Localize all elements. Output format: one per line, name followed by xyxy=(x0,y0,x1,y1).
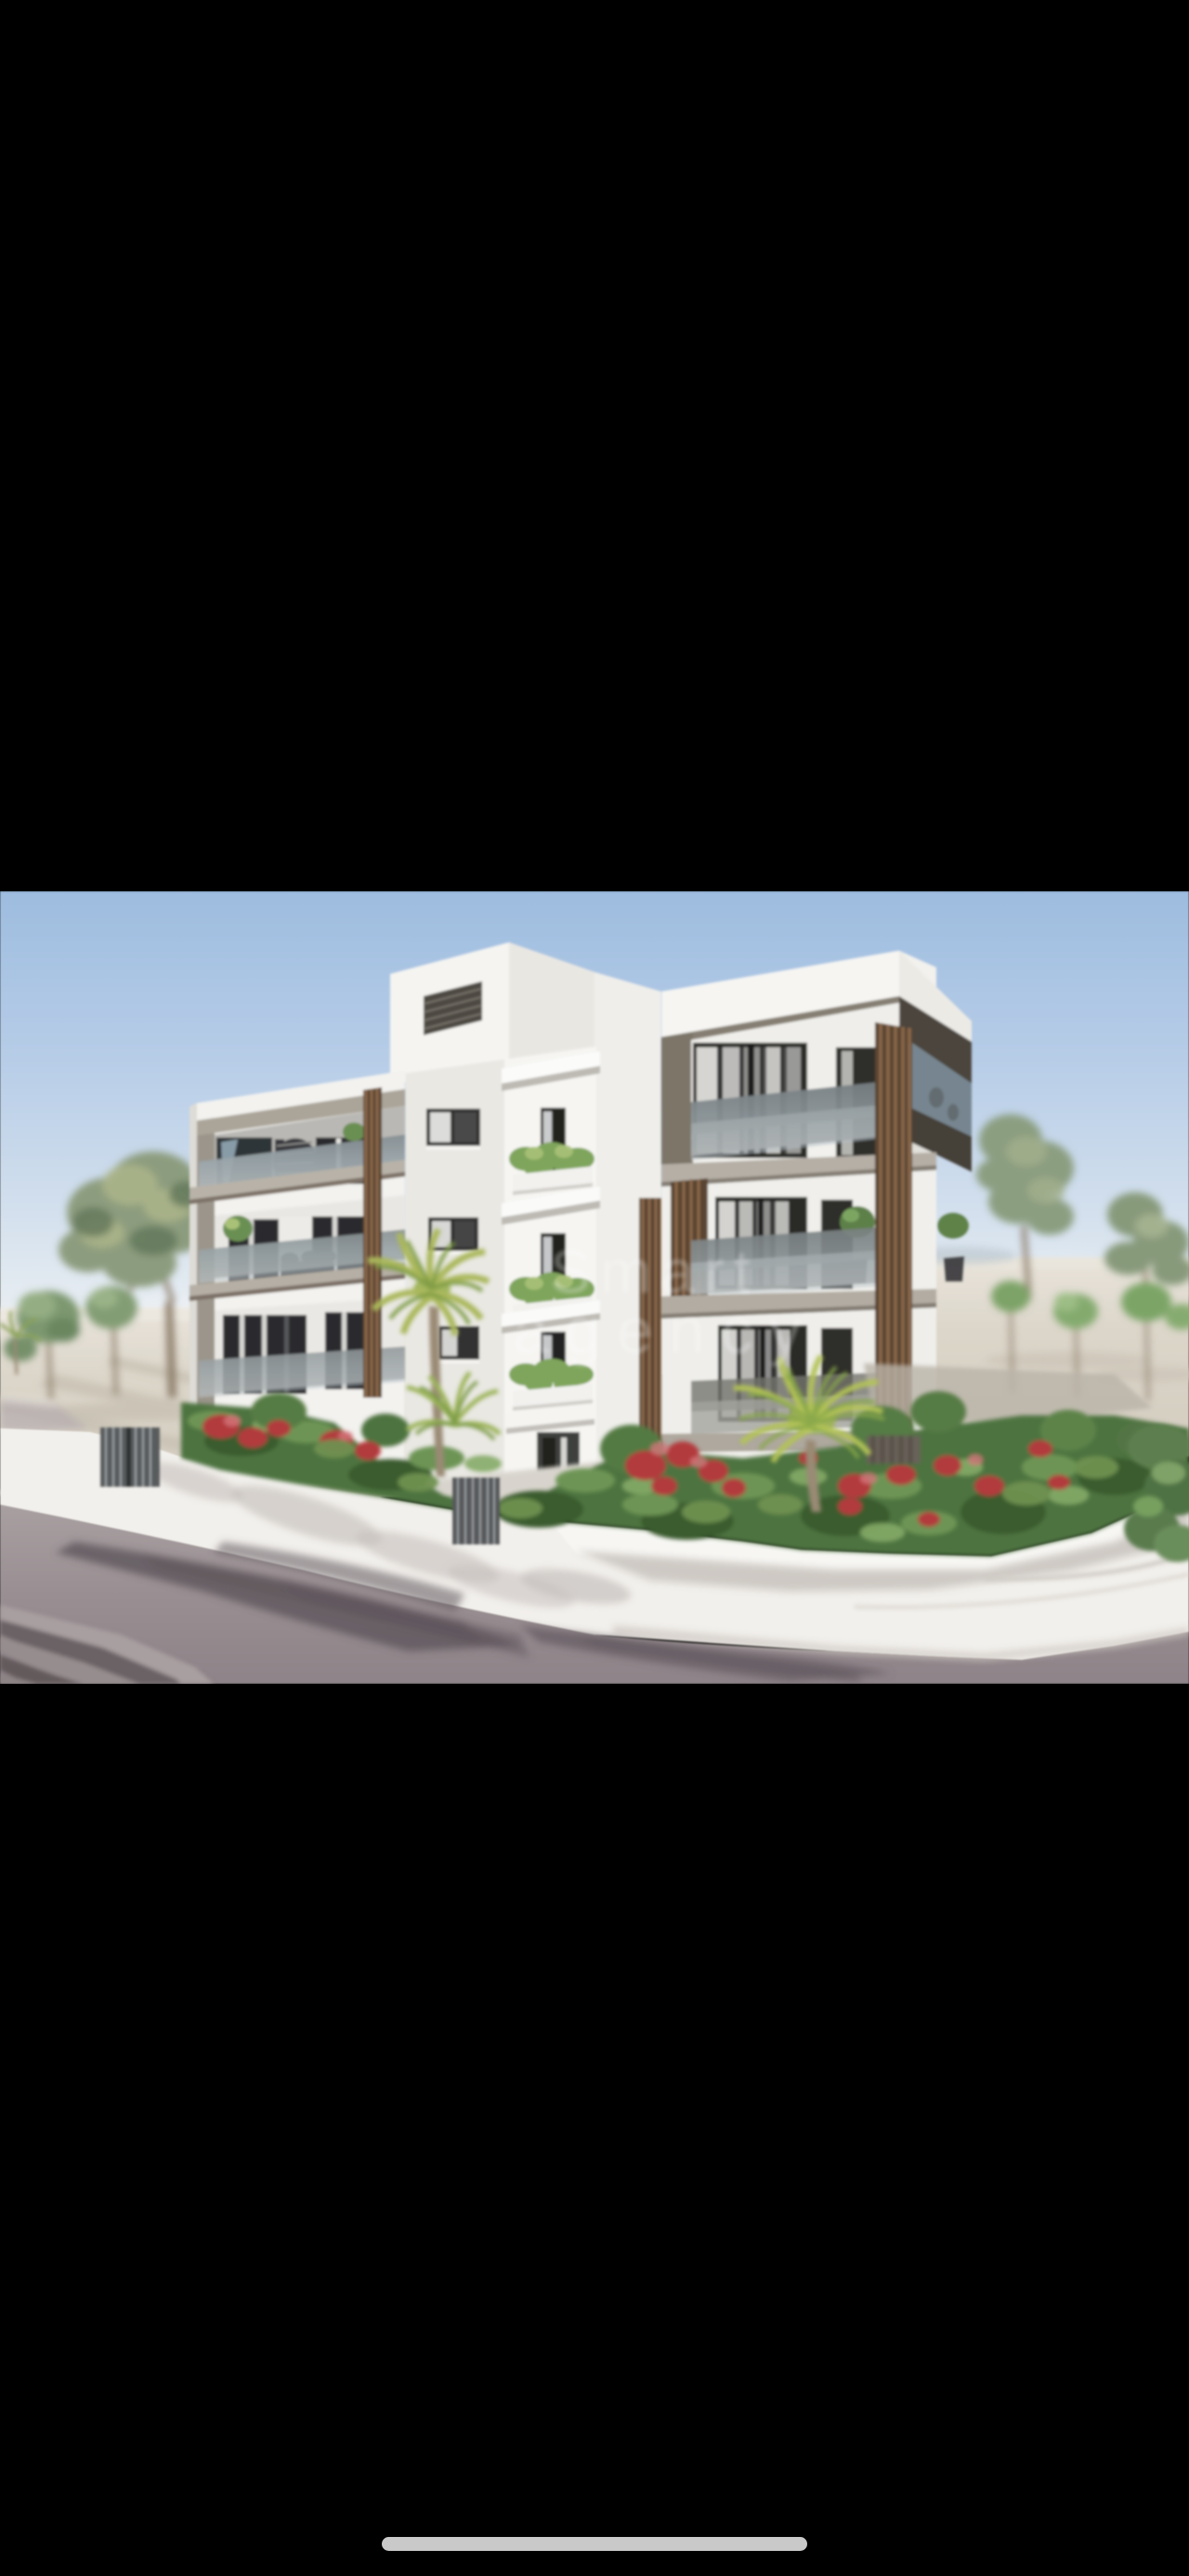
svg-text:agency: agency xyxy=(513,1295,817,1367)
